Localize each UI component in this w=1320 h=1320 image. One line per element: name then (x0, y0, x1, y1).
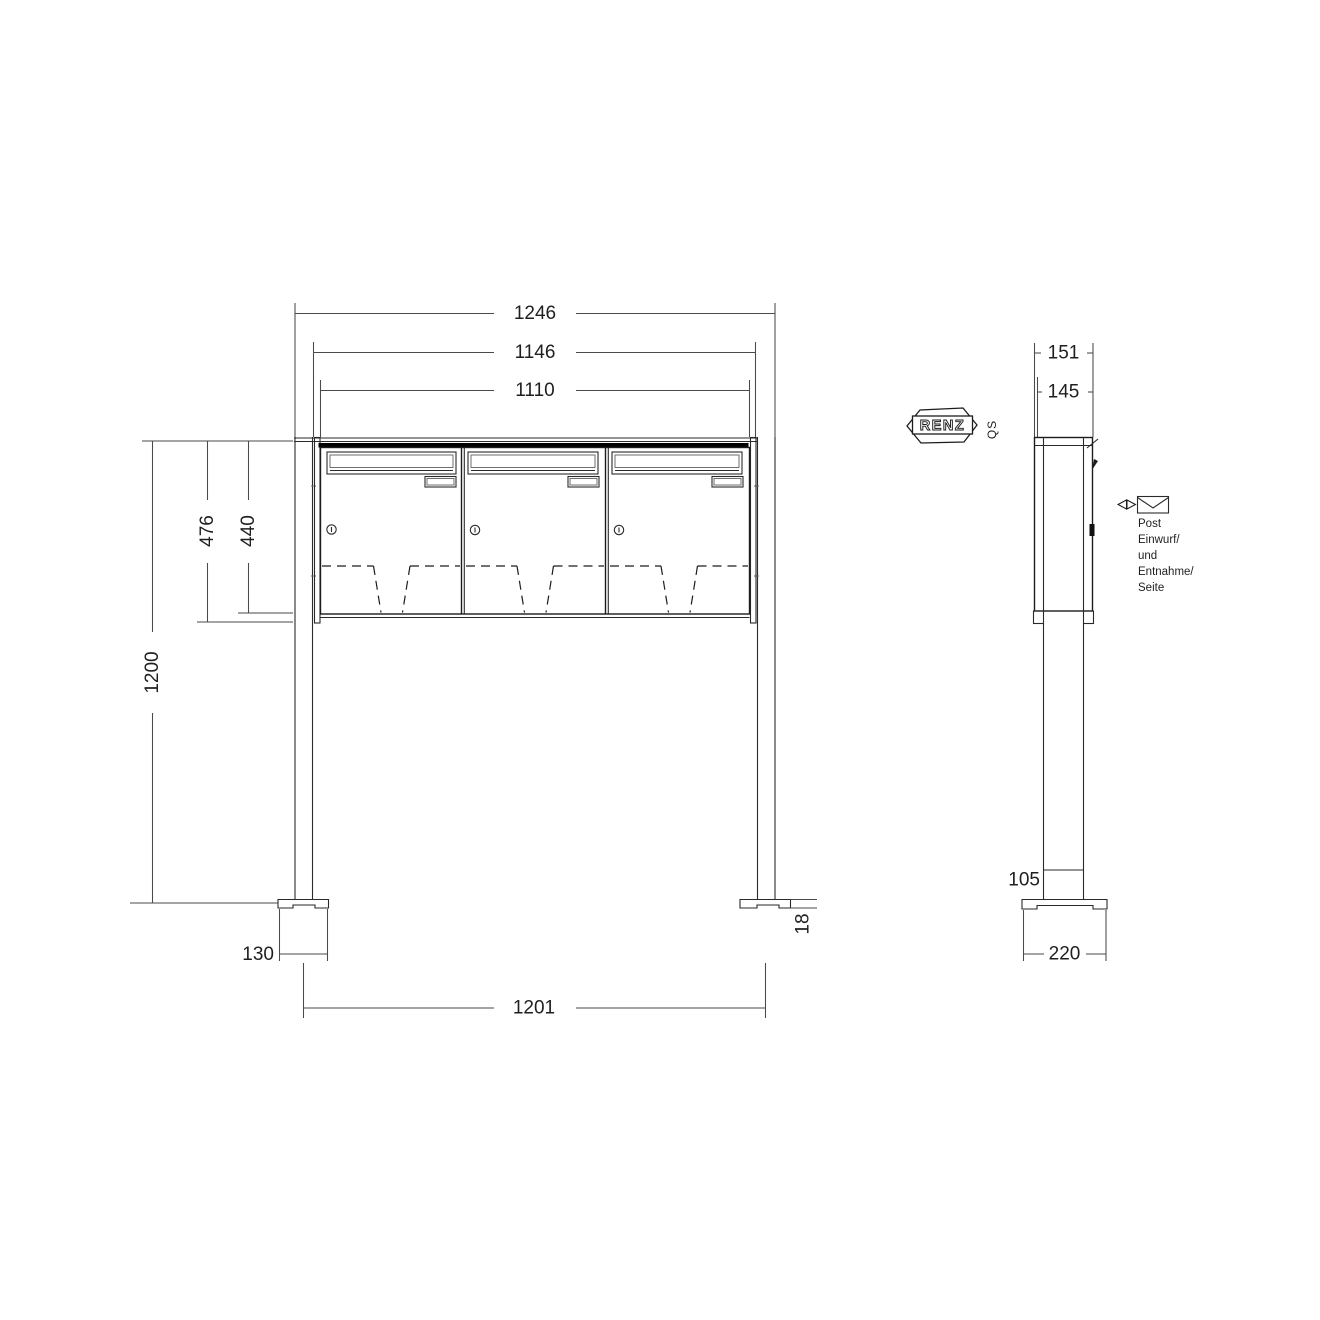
dimension-foundation-width: 130 (242, 944, 327, 965)
post-left (295, 437, 316, 900)
technical-drawing-page: 1246 1146 1110 1200 476 (0, 0, 1320, 1320)
dimension-post-height: 1200 (130, 441, 293, 903)
compartment-2 (466, 452, 604, 613)
base-plate-right (740, 900, 791, 909)
annotation-line-5: Seite (1138, 582, 1164, 594)
annotation-line-3: und (1138, 550, 1157, 562)
post-right (754, 437, 775, 900)
annotation-line-2: Einwurf/ (1138, 534, 1180, 546)
dimension-post-spacing: 1201 (304, 963, 766, 1019)
dim-label-body-depth: 145 (1048, 382, 1080, 403)
front-view: 1246 1146 1110 1200 476 (130, 303, 817, 1019)
side-lock (1090, 524, 1095, 536)
dim-label-post-base-height: 105 (1008, 870, 1040, 891)
qs-label: QS (985, 420, 999, 439)
annotation-line-4: Entnahme/ (1138, 566, 1194, 578)
compartment-1 (322, 452, 460, 613)
dimension-body-depth: 145 (1038, 377, 1094, 437)
arrows-icon (1118, 500, 1136, 509)
door-swing-dashed (322, 566, 460, 613)
side-post (1044, 624, 1084, 900)
cabinet-body (321, 448, 750, 615)
dim-label-foundation-width: 130 (242, 944, 274, 965)
dim-label-height-with-trim: 476 (197, 515, 218, 547)
dim-label-plate-thickness: 18 (793, 913, 814, 934)
side-trim-right (751, 438, 757, 624)
door-swing-dashed (466, 566, 604, 613)
renz-logo: RENZ (907, 408, 977, 443)
dimension-body-height: 440 (238, 441, 293, 613)
dim-label-total-width: 1246 (514, 303, 556, 324)
side-cabinet (1034, 438, 1099, 624)
lock-icon (470, 525, 479, 534)
base-plate-left (278, 900, 329, 948)
dimension-body-width: 1110 (321, 380, 750, 437)
dim-label-post-height: 1200 (142, 651, 163, 693)
dimension-total-width: 1246 (295, 303, 775, 437)
mail-annotation: Post Einwurf/ und Entnahme/ Seite (1118, 497, 1194, 595)
side-base-plate (1022, 900, 1107, 948)
side-foot-left (1034, 611, 1044, 624)
dim-label-total-depth: 151 (1048, 343, 1080, 364)
lock-icon (614, 525, 623, 534)
annotation-line-1: Post (1138, 518, 1162, 530)
dim-label-body-height: 440 (238, 515, 259, 547)
renz-logo-text: RENZ (920, 418, 965, 434)
compartment-3 (610, 452, 748, 613)
dim-label-cabinet-width: 1146 (515, 342, 556, 363)
mailbox-dimension-drawing: 1246 1146 1110 1200 476 (0, 0, 1320, 1320)
dim-label-foundation-depth: 220 (1049, 944, 1081, 965)
envelope-icon (1138, 497, 1169, 514)
dimension-foundation-depth: 220 (1024, 944, 1107, 965)
side-foot-right (1084, 611, 1094, 624)
door-swing-dashed (610, 566, 748, 613)
cabinet (294, 438, 757, 624)
side-view: 151 145 105 (1008, 343, 1194, 965)
dim-label-body-width: 1110 (515, 380, 554, 401)
side-trim-left (315, 438, 321, 624)
dimension-plate-thickness: 18 (791, 900, 818, 935)
lock-icon (327, 525, 336, 534)
dim-label-post-spacing: 1201 (513, 998, 555, 1019)
